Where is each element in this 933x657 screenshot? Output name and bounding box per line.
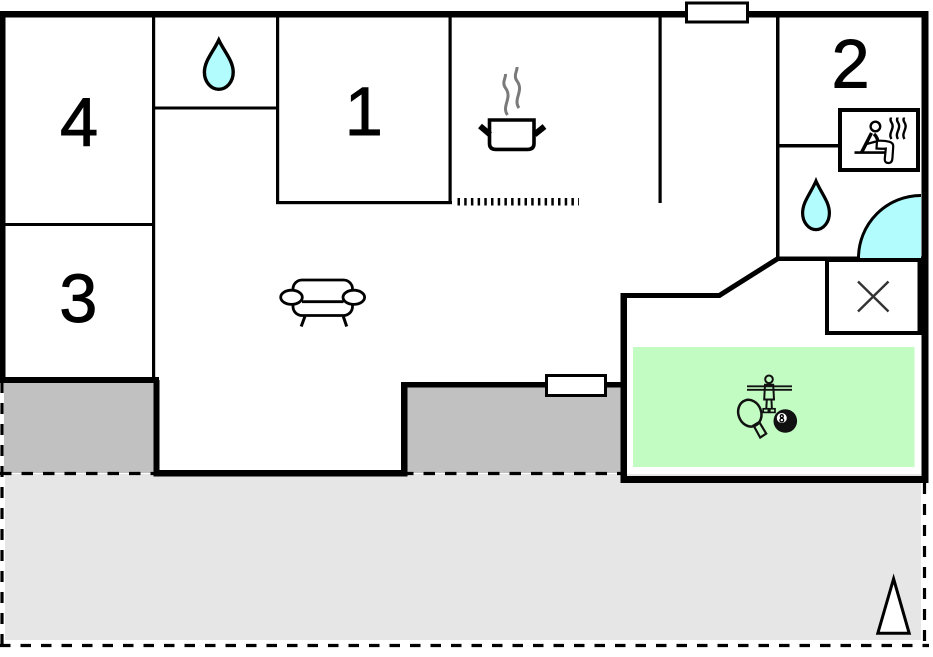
svg-text:3: 3	[59, 260, 97, 337]
svg-text:1: 1	[345, 73, 383, 150]
svg-text:2: 2	[831, 25, 869, 102]
svg-text:4: 4	[60, 83, 98, 160]
